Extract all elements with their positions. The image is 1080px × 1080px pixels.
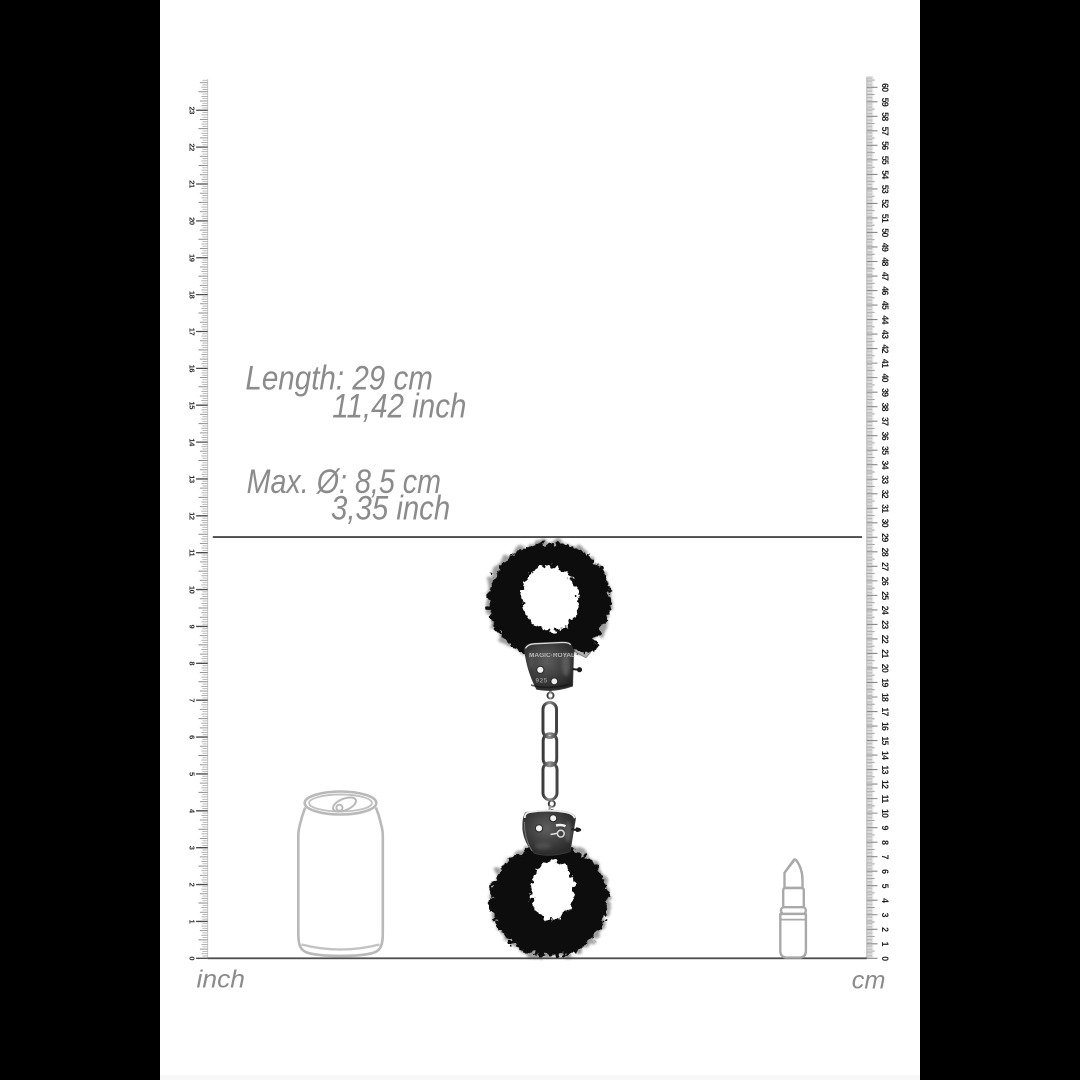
svg-text:20: 20 (880, 664, 890, 673)
svg-text:53: 53 (880, 185, 890, 194)
svg-text:52: 52 (880, 199, 890, 208)
svg-text:23: 23 (880, 620, 890, 629)
svg-text:12: 12 (880, 780, 890, 789)
svg-text:3: 3 (187, 846, 196, 850)
svg-text:20: 20 (187, 217, 196, 225)
svg-text:41: 41 (880, 359, 890, 368)
svg-text:43: 43 (880, 330, 890, 339)
svg-text:2: 2 (187, 883, 196, 887)
svg-text:7: 7 (187, 698, 196, 702)
svg-text:42: 42 (880, 344, 890, 353)
svg-text:51: 51 (880, 214, 890, 223)
svg-text:49: 49 (880, 243, 890, 252)
svg-text:23: 23 (187, 106, 196, 114)
svg-text:0: 0 (187, 956, 196, 960)
svg-text:29: 29 (880, 533, 890, 542)
svg-text:25: 25 (880, 591, 890, 600)
svg-text:8: 8 (187, 661, 196, 665)
svg-text:38: 38 (880, 402, 890, 411)
svg-text:26: 26 (880, 577, 890, 586)
svg-text:19: 19 (187, 254, 196, 262)
svg-text:36: 36 (880, 432, 890, 441)
svg-text:33: 33 (880, 475, 890, 484)
svg-text:11,42 inch: 11,42 inch (332, 388, 466, 426)
svg-text:46: 46 (880, 286, 890, 295)
svg-text:cm: cm (852, 967, 886, 995)
svg-text:12: 12 (187, 512, 196, 520)
svg-text:32: 32 (880, 490, 890, 499)
svg-text:34: 34 (880, 461, 890, 470)
svg-text:6: 6 (187, 735, 196, 739)
svg-text:28: 28 (880, 548, 890, 557)
svg-text:21: 21 (880, 649, 890, 658)
svg-text:inch: inch (197, 966, 246, 994)
svg-text:60: 60 (880, 83, 890, 92)
svg-text:55: 55 (880, 156, 890, 165)
svg-text:30: 30 (880, 519, 890, 528)
svg-text:5: 5 (187, 772, 196, 776)
svg-text:16: 16 (187, 365, 196, 373)
svg-text:15: 15 (880, 736, 890, 745)
svg-text:22: 22 (187, 143, 196, 151)
svg-text:24: 24 (880, 606, 890, 615)
svg-text:35: 35 (880, 446, 890, 455)
svg-text:45: 45 (880, 301, 890, 310)
svg-text:40: 40 (880, 373, 890, 382)
svg-text:44: 44 (880, 315, 890, 324)
svg-text:3,35 inch: 3,35 inch (331, 489, 450, 527)
svg-text:48: 48 (880, 257, 890, 266)
svg-text:57: 57 (880, 127, 890, 136)
svg-text:17: 17 (880, 707, 890, 716)
svg-text:MAGIC·ROYAL: MAGIC·ROYAL (529, 653, 575, 659)
svg-text:15: 15 (187, 401, 196, 409)
svg-text:13: 13 (187, 475, 196, 483)
svg-text:14: 14 (187, 438, 196, 447)
svg-text:59: 59 (880, 98, 890, 107)
svg-text:11: 11 (880, 795, 890, 804)
svg-text:31: 31 (880, 504, 890, 513)
svg-text:1: 1 (187, 920, 196, 924)
svg-text:56: 56 (880, 141, 890, 150)
svg-text:18: 18 (880, 693, 890, 702)
svg-text:54: 54 (880, 170, 890, 179)
svg-text:22: 22 (880, 635, 890, 644)
svg-text:19: 19 (880, 678, 890, 687)
svg-text:10: 10 (187, 586, 196, 594)
svg-text:17: 17 (187, 328, 196, 336)
svg-text:18: 18 (187, 291, 196, 299)
svg-text:10: 10 (880, 809, 890, 818)
svg-text:11: 11 (187, 549, 196, 556)
svg-text:13: 13 (880, 765, 890, 774)
svg-text:47: 47 (880, 272, 890, 281)
svg-text:9: 9 (187, 625, 196, 629)
svg-text:37: 37 (880, 417, 890, 426)
svg-text:925: 925 (536, 678, 548, 685)
svg-text:58: 58 (880, 112, 890, 121)
svg-text:27: 27 (880, 562, 890, 571)
svg-text:50: 50 (880, 228, 890, 237)
svg-text:16: 16 (880, 722, 890, 731)
svg-text:21: 21 (187, 180, 196, 188)
svg-text:39: 39 (880, 388, 890, 397)
svg-text:14: 14 (880, 751, 890, 760)
